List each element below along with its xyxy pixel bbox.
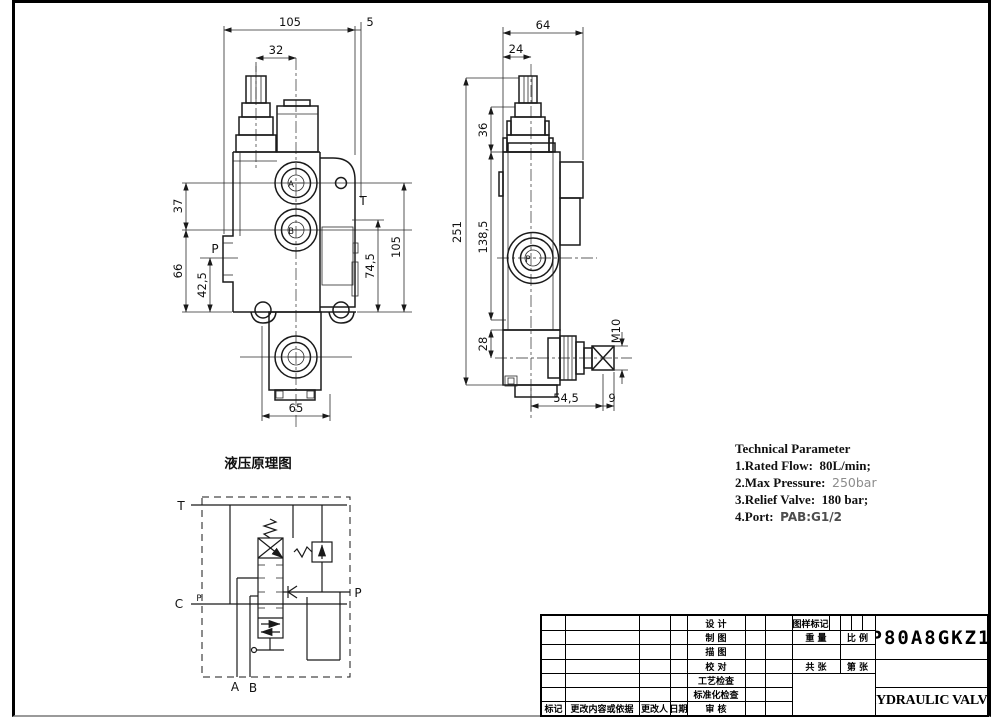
part-number: P80A8GKZ1 — [875, 616, 987, 659]
max-pressure-label: 2.Max Pressure: — [735, 475, 826, 490]
titleblock-row-design: 设 计 — [687, 616, 745, 630]
hydraulic-schematic: 液压原理图 — [175, 455, 362, 695]
side-view: 64 24 36 251 138,5 28 M10 54,5 9 P — [450, 18, 632, 420]
thread-callout-m10: M10 — [609, 319, 623, 344]
directional-valve-symbol — [252, 519, 285, 653]
dim-side-138-5: 138,5 — [476, 221, 490, 254]
titleblock-row-tracing: 描 图 — [687, 644, 745, 659]
titleblock-row-standardization-check: 标准化检查 — [687, 687, 745, 701]
titleblock-sheet-no-label: 第 张 — [840, 659, 875, 673]
relief-valve-value: 180 bar; — [822, 492, 869, 507]
side-view-relief-knob — [503, 76, 555, 152]
grid-line — [829, 616, 830, 630]
schematic-port-labels: T C P P A B — [175, 499, 362, 695]
port-b-label: B — [288, 227, 294, 237]
titleblock-change-content-label: 更改内容或依据 — [565, 701, 639, 715]
port-spec-label: 4.Port: — [735, 509, 774, 524]
dim-front-65: 65 — [289, 401, 304, 415]
dim-front-overall-width: 105 — [279, 15, 301, 29]
titleblock-date-label: 日期 — [670, 701, 687, 715]
titleblock-total-sheets-label: 共 张 — [792, 659, 840, 673]
side-port-p-label: P — [525, 255, 530, 265]
schematic-title: 液压原理图 — [224, 455, 292, 472]
cad-drawing-canvas: 105 5 32 37 66 42,5 74,5 105 65 A B P T — [0, 0, 1000, 719]
dim-side-54-5: 54,5 — [553, 391, 579, 405]
relief-valve-label: 3.Relief Valve: — [735, 492, 815, 507]
side-view-lower-body-spool — [503, 330, 614, 397]
dim-side-24: 24 — [509, 42, 524, 56]
max-pressure-value: 250bar — [832, 475, 877, 490]
titleblock-weight-label: 重 量 — [792, 630, 840, 644]
dim-side-36: 36 — [476, 123, 490, 138]
dim-side-251: 251 — [450, 221, 464, 243]
grid-line — [542, 659, 987, 660]
titleblock-changed-by-label: 更改人 — [639, 701, 670, 715]
schematic-lines — [191, 505, 350, 677]
relief-valve-symbol — [294, 542, 332, 562]
grid-line — [851, 616, 852, 630]
dim-front-height-105: 105 — [389, 236, 403, 258]
schematic-port-t: T — [176, 499, 185, 513]
front-view-port-labels: A B P T — [211, 180, 367, 256]
dim-front-37: 37 — [171, 199, 185, 214]
side-view-body — [499, 152, 583, 330]
dim-front-42-5: 42,5 — [195, 272, 209, 298]
grid-line — [862, 616, 863, 630]
dim-front-66: 66 — [171, 264, 185, 279]
titleblock-drawing-mark-label: 图样标记 — [792, 616, 829, 630]
dim-front-offset-5: 5 — [366, 15, 373, 29]
titleblock-row-review: 审 核 — [687, 701, 745, 715]
port-a-label: A — [288, 180, 294, 190]
dim-side-64: 64 — [536, 18, 551, 32]
side-view-dimensions: 64 24 36 251 138,5 28 M10 54,5 9 P — [450, 18, 628, 411]
technical-parameter-block: Technical Parameter 1.Rated Flow: 80L/mi… — [735, 440, 945, 526]
technical-parameter-title: Technical Parameter — [735, 440, 945, 457]
front-view: 105 5 32 37 66 42,5 74,5 105 65 A B P T — [171, 15, 412, 428]
dim-side-28: 28 — [476, 337, 490, 352]
schematic-port-a: A — [231, 680, 240, 694]
titleblock-row-drafting: 制 图 — [687, 630, 745, 644]
rated-flow-value: 80L/min; — [820, 458, 871, 473]
schematic-port-b: B — [249, 681, 257, 695]
product-title: HYDRAULIC VALVE — [875, 687, 987, 715]
front-view-top-block — [277, 100, 318, 152]
front-view-bottom-outlet — [269, 312, 321, 400]
title-block: 设 计 制 图 描 图 校 对 工艺检查 标准化检查 审 核 标记 更改内容或依… — [540, 614, 989, 717]
titleblock-mark-label: 标记 — [542, 701, 565, 715]
grid-line — [542, 687, 792, 688]
port-t-label: T — [358, 194, 367, 208]
engineering-drawing-sheet: 105 5 32 37 66 42,5 74,5 105 65 A B P T — [0, 0, 1000, 719]
rated-flow-label: 1.Rated Flow: — [735, 458, 813, 473]
schematic-port-c: C — [175, 597, 183, 611]
dim-front-74-5: 74,5 — [363, 253, 377, 279]
dim-front-knob-32: 32 — [269, 43, 284, 57]
schematic-port-p: P — [354, 586, 361, 600]
dim-side-9: 9 — [608, 391, 615, 405]
titleblock-scale-label: 比 例 — [840, 630, 875, 644]
technical-line-relief-valve: 3.Relief Valve: 180 bar; — [735, 491, 945, 508]
technical-line-max-pressure: 2.Max Pressure: 250bar — [735, 474, 945, 491]
titleblock-row-proofread: 校 对 — [687, 659, 745, 673]
schematic-port-plug: P — [196, 594, 201, 604]
titleblock-row-process-check: 工艺检查 — [687, 673, 745, 687]
technical-line-rated-flow: 1.Rated Flow: 80L/min; — [735, 457, 945, 474]
technical-line-port: 4.Port: PAB:G1/2 — [735, 508, 945, 526]
port-spec-value: PAB:G1/2 — [780, 510, 842, 524]
port-p-label: P — [211, 242, 218, 256]
